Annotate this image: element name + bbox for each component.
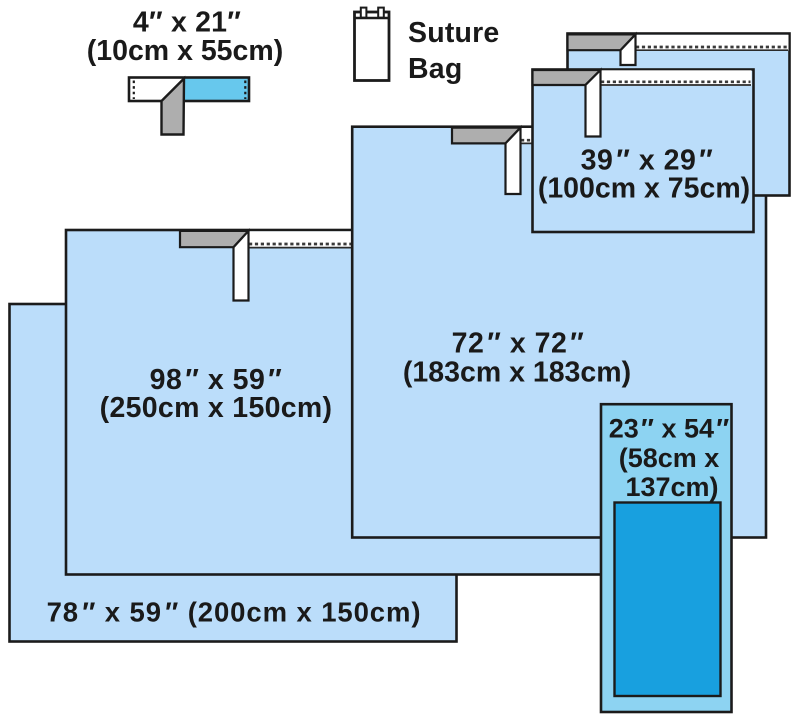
svg-text:Suture: Suture [408,17,499,49]
svg-text:(58cm x: (58cm x [619,443,720,473]
svg-text:72 ″ x 72 ″: 72 ″ x 72 ″ [452,328,585,360]
svg-text:137cm): 137cm) [625,472,718,502]
svg-text:Bag: Bag [408,53,462,85]
svg-text:(100cm x 75cm): (100cm x 75cm) [538,173,750,205]
svg-text:4″ x 21″: 4″ x 21″ [133,6,241,38]
svg-text:(183cm x 183cm): (183cm x 183cm) [403,357,631,389]
svg-text:(250cm x 150cm): (250cm x 150cm) [100,392,333,424]
svg-text:78 ″ x 59 ″ (200cm x 150cm): 78 ″ x 59 ″ (200cm x 150cm) [47,597,422,628]
svg-text:23 ″ x 54 ″: 23 ″ x 54 ″ [609,414,730,444]
svg-text:(10cm x 55cm): (10cm x 55cm) [87,35,283,67]
